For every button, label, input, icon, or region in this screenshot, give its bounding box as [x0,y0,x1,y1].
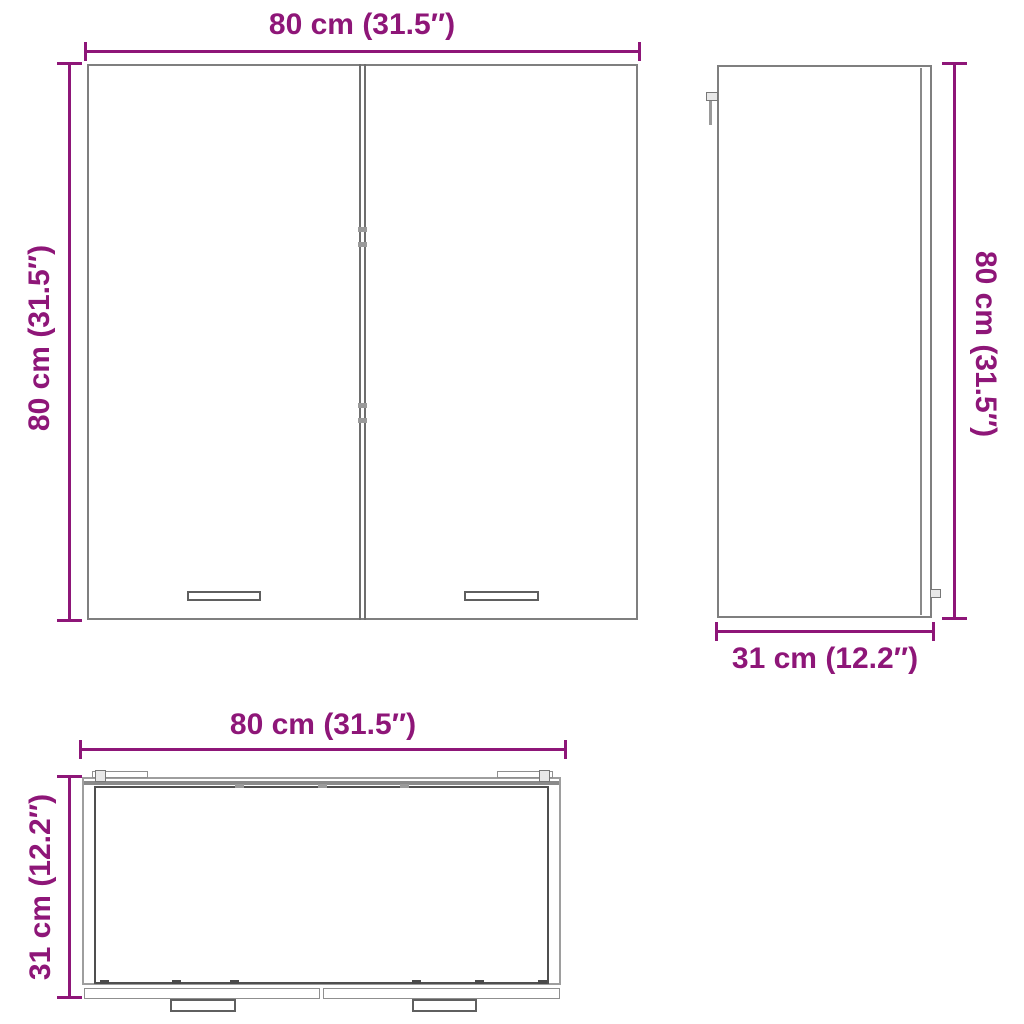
bottom-hinge-knob-left [95,770,106,782]
bottom-door-handle-right [412,999,477,1012]
bottom-width-dimension-label: 80 cm (31.5″) [213,708,433,742]
front-door-seam [359,64,366,620]
bottom-depth-dimension-line [68,776,71,998]
front-hinge-mark [358,418,367,423]
bottom-hinge-mark [100,980,109,984]
bottom-hinge-mark [172,980,181,984]
front-height-dimension-line [68,63,71,621]
side-cabinet-outline [717,65,932,618]
side-depth-dimension-label: 31 cm (12.2″) [715,642,935,676]
bottom-fitting-mark [235,784,244,788]
front-hinge-mark [358,403,367,408]
side-hinge-stem [709,101,712,125]
side-back-panel-line [920,68,922,615]
bottom-inner-outline [94,786,549,984]
bottom-hinge-mark [230,980,239,984]
bottom-hinge-knob-right [539,770,550,782]
front-hinge-mark [358,242,367,247]
bottom-hinge-mark [412,980,421,984]
front-hinge-mark [358,227,367,232]
bottom-width-dimension-line [80,748,566,751]
side-height-dimension-label: 80 cm (31.5″) [968,234,1002,454]
bottom-door-handle-left [170,999,236,1012]
bottom-fitting-mark [318,784,327,788]
side-depth-dimension-line [716,630,934,633]
bottom-fitting-mark [400,784,409,788]
front-width-dimension-label: 80 cm (31.5″) [252,8,472,42]
front-width-dimension-line [85,50,640,53]
front-door-handle-left [187,591,261,601]
dimension-diagram: 80 cm (31.5″) 80 cm (31.5″) 80 cm (31.5″… [0,0,1024,1024]
bottom-depth-dimension-label: 31 cm (12.2″) [24,777,58,997]
side-height-dimension-line [953,63,956,619]
bottom-door-edge-left [84,988,320,999]
front-height-dimension-label: 80 cm (31.5″) [23,228,57,448]
front-door-handle-right [464,591,539,601]
side-wall-bracket [930,589,941,598]
bottom-door-edge-right [323,988,560,999]
bottom-hinge-mark [475,980,484,984]
bottom-hinge-mark [538,980,547,984]
side-hinge-detail [706,92,718,101]
